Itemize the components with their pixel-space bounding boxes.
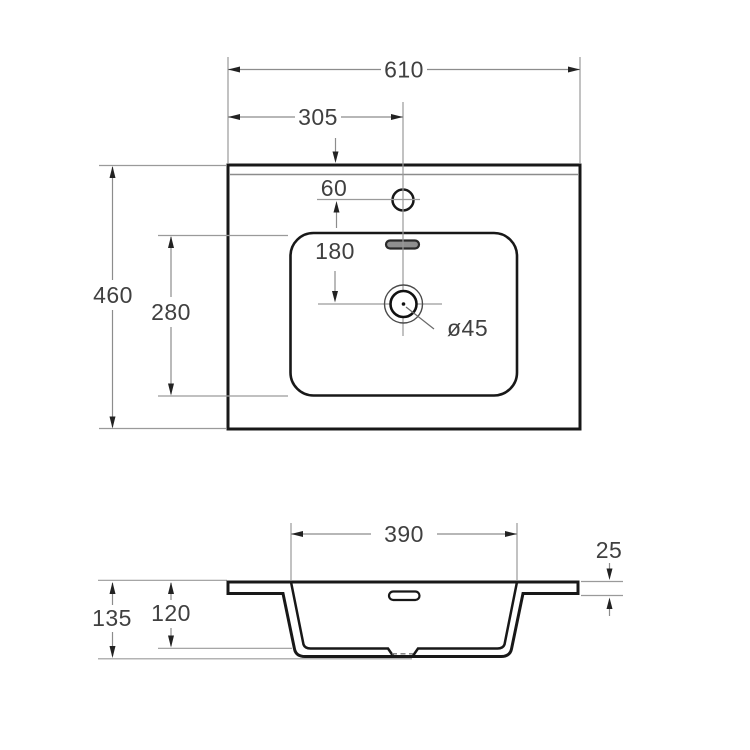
arrow-up: [110, 582, 116, 594]
dim-total-depth: 460: [93, 282, 133, 308]
arrow-right: [391, 114, 403, 120]
dim-center-offset: 305: [298, 104, 338, 130]
drain-center-dot: [402, 302, 406, 306]
dim-bowl-length: 280: [151, 299, 191, 325]
arrow-down: [168, 636, 174, 648]
arrow-left: [291, 531, 303, 537]
overflow-slot-section: [389, 592, 420, 601]
section-view: 390 25 135 120: [92, 521, 623, 659]
technical-drawing-page: ø45 610 305 60 180 460: [0, 0, 750, 750]
arrow-down: [333, 152, 339, 164]
arrow-down: [110, 646, 116, 658]
arrow-right: [505, 531, 517, 537]
arrow-down: [607, 569, 613, 581]
arrow-left: [228, 67, 240, 73]
arrow-up: [168, 582, 174, 594]
dim-rim-thickness: 25: [596, 537, 623, 563]
dim-total-height: 135: [92, 605, 132, 631]
dim-bowl-width: 390: [384, 521, 424, 547]
dim-faucet-offset: 60: [321, 175, 348, 201]
dim-total-width: 610: [384, 57, 424, 83]
dim-faucet-to-drain: 180: [315, 238, 355, 264]
arrow-right: [568, 67, 580, 73]
arrow-up: [607, 598, 613, 610]
dim-drain-diameter: ø45: [447, 315, 488, 341]
arrow-up: [168, 236, 174, 248]
washbasin-dimension-drawing: ø45 610 305 60 180 460: [0, 0, 750, 750]
dim-bowl-depth: 120: [151, 600, 191, 626]
arrow-up: [110, 166, 116, 178]
arrow-down: [110, 417, 116, 429]
top-view: ø45 610 305 60 180 460: [93, 57, 580, 430]
arrow-left: [228, 114, 240, 120]
arrow-down: [168, 384, 174, 396]
